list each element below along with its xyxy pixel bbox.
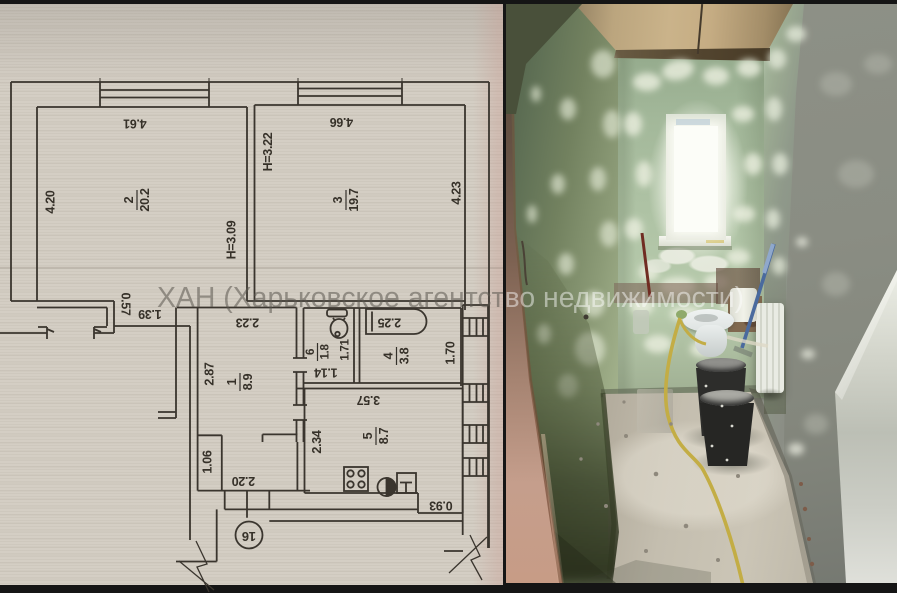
svg-text:1: 1: [225, 378, 239, 385]
svg-text:4.61: 4.61: [123, 117, 146, 131]
svg-text:2.34: 2.34: [310, 430, 324, 453]
svg-text:1.70: 1.70: [443, 341, 457, 364]
svg-text:4.23: 4.23: [449, 181, 463, 204]
svg-text:H=3.22: H=3.22: [261, 132, 275, 171]
svg-text:4: 4: [382, 352, 396, 359]
svg-text:20.2: 20.2: [138, 188, 152, 211]
svg-text:8.7: 8.7: [377, 427, 391, 444]
svg-text:8.9: 8.9: [241, 373, 255, 390]
svg-text:16: 16: [242, 529, 256, 544]
svg-text:2.20: 2.20: [232, 474, 255, 488]
svg-text:3.8: 3.8: [398, 347, 412, 364]
svg-text:5: 5: [361, 432, 375, 439]
svg-text:H=3.09: H=3.09: [224, 220, 238, 259]
svg-text:2.23: 2.23: [236, 316, 259, 330]
svg-text:6: 6: [305, 349, 317, 355]
svg-text:0.93: 0.93: [429, 499, 452, 513]
svg-text:2.87: 2.87: [202, 362, 216, 385]
svg-text:1.14: 1.14: [314, 366, 337, 380]
svg-text:1.06: 1.06: [200, 450, 214, 473]
svg-text:1.71: 1.71: [340, 339, 352, 361]
svg-text:3: 3: [331, 196, 345, 203]
svg-text:4.66: 4.66: [330, 115, 353, 129]
svg-text:1.8: 1.8: [320, 344, 332, 360]
svg-text:2.25: 2.25: [378, 316, 401, 330]
svg-text:19.7: 19.7: [347, 188, 361, 211]
svg-text:2: 2: [122, 196, 136, 203]
svg-text:4.20: 4.20: [43, 190, 57, 213]
svg-text:3.57: 3.57: [357, 393, 380, 407]
